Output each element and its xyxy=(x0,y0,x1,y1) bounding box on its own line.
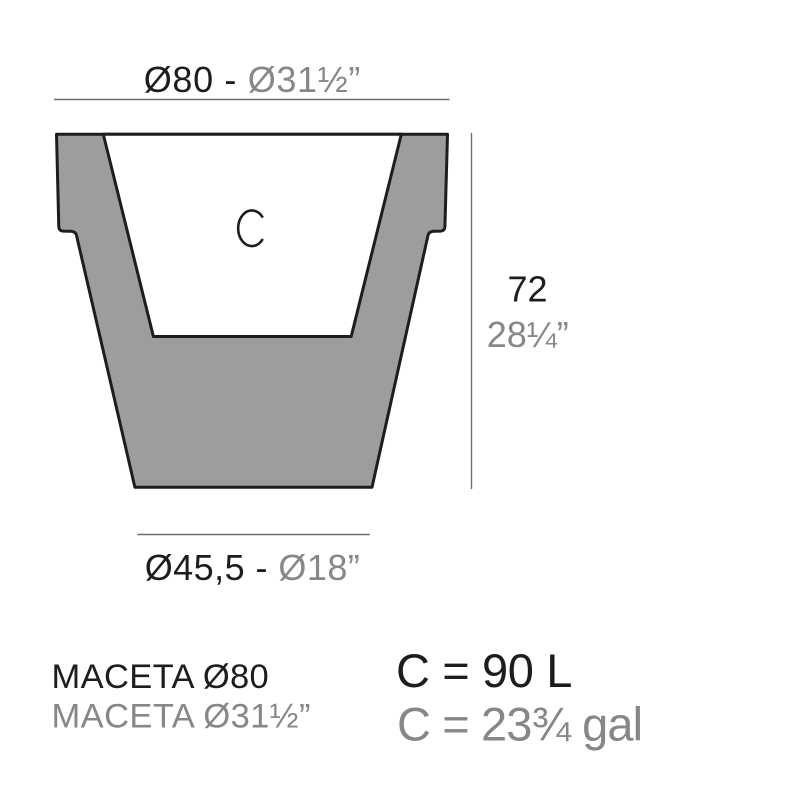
svg-text:MACETA Ø80: MACETA Ø80 xyxy=(52,658,270,696)
svg-text:Ø80 - Ø31½”: Ø80 - Ø31½” xyxy=(144,59,361,100)
svg-text:28¼”: 28¼” xyxy=(487,314,569,355)
svg-text:C = 23¾ gal: C = 23¾ gal xyxy=(397,698,642,751)
svg-text:72: 72 xyxy=(507,269,547,310)
svg-text:Ø45,5 - Ø18”: Ø45,5 - Ø18” xyxy=(145,547,361,588)
svg-text:C = 90 L: C = 90 L xyxy=(396,644,572,697)
svg-text:MACETA Ø31½”: MACETA Ø31½” xyxy=(52,698,311,736)
